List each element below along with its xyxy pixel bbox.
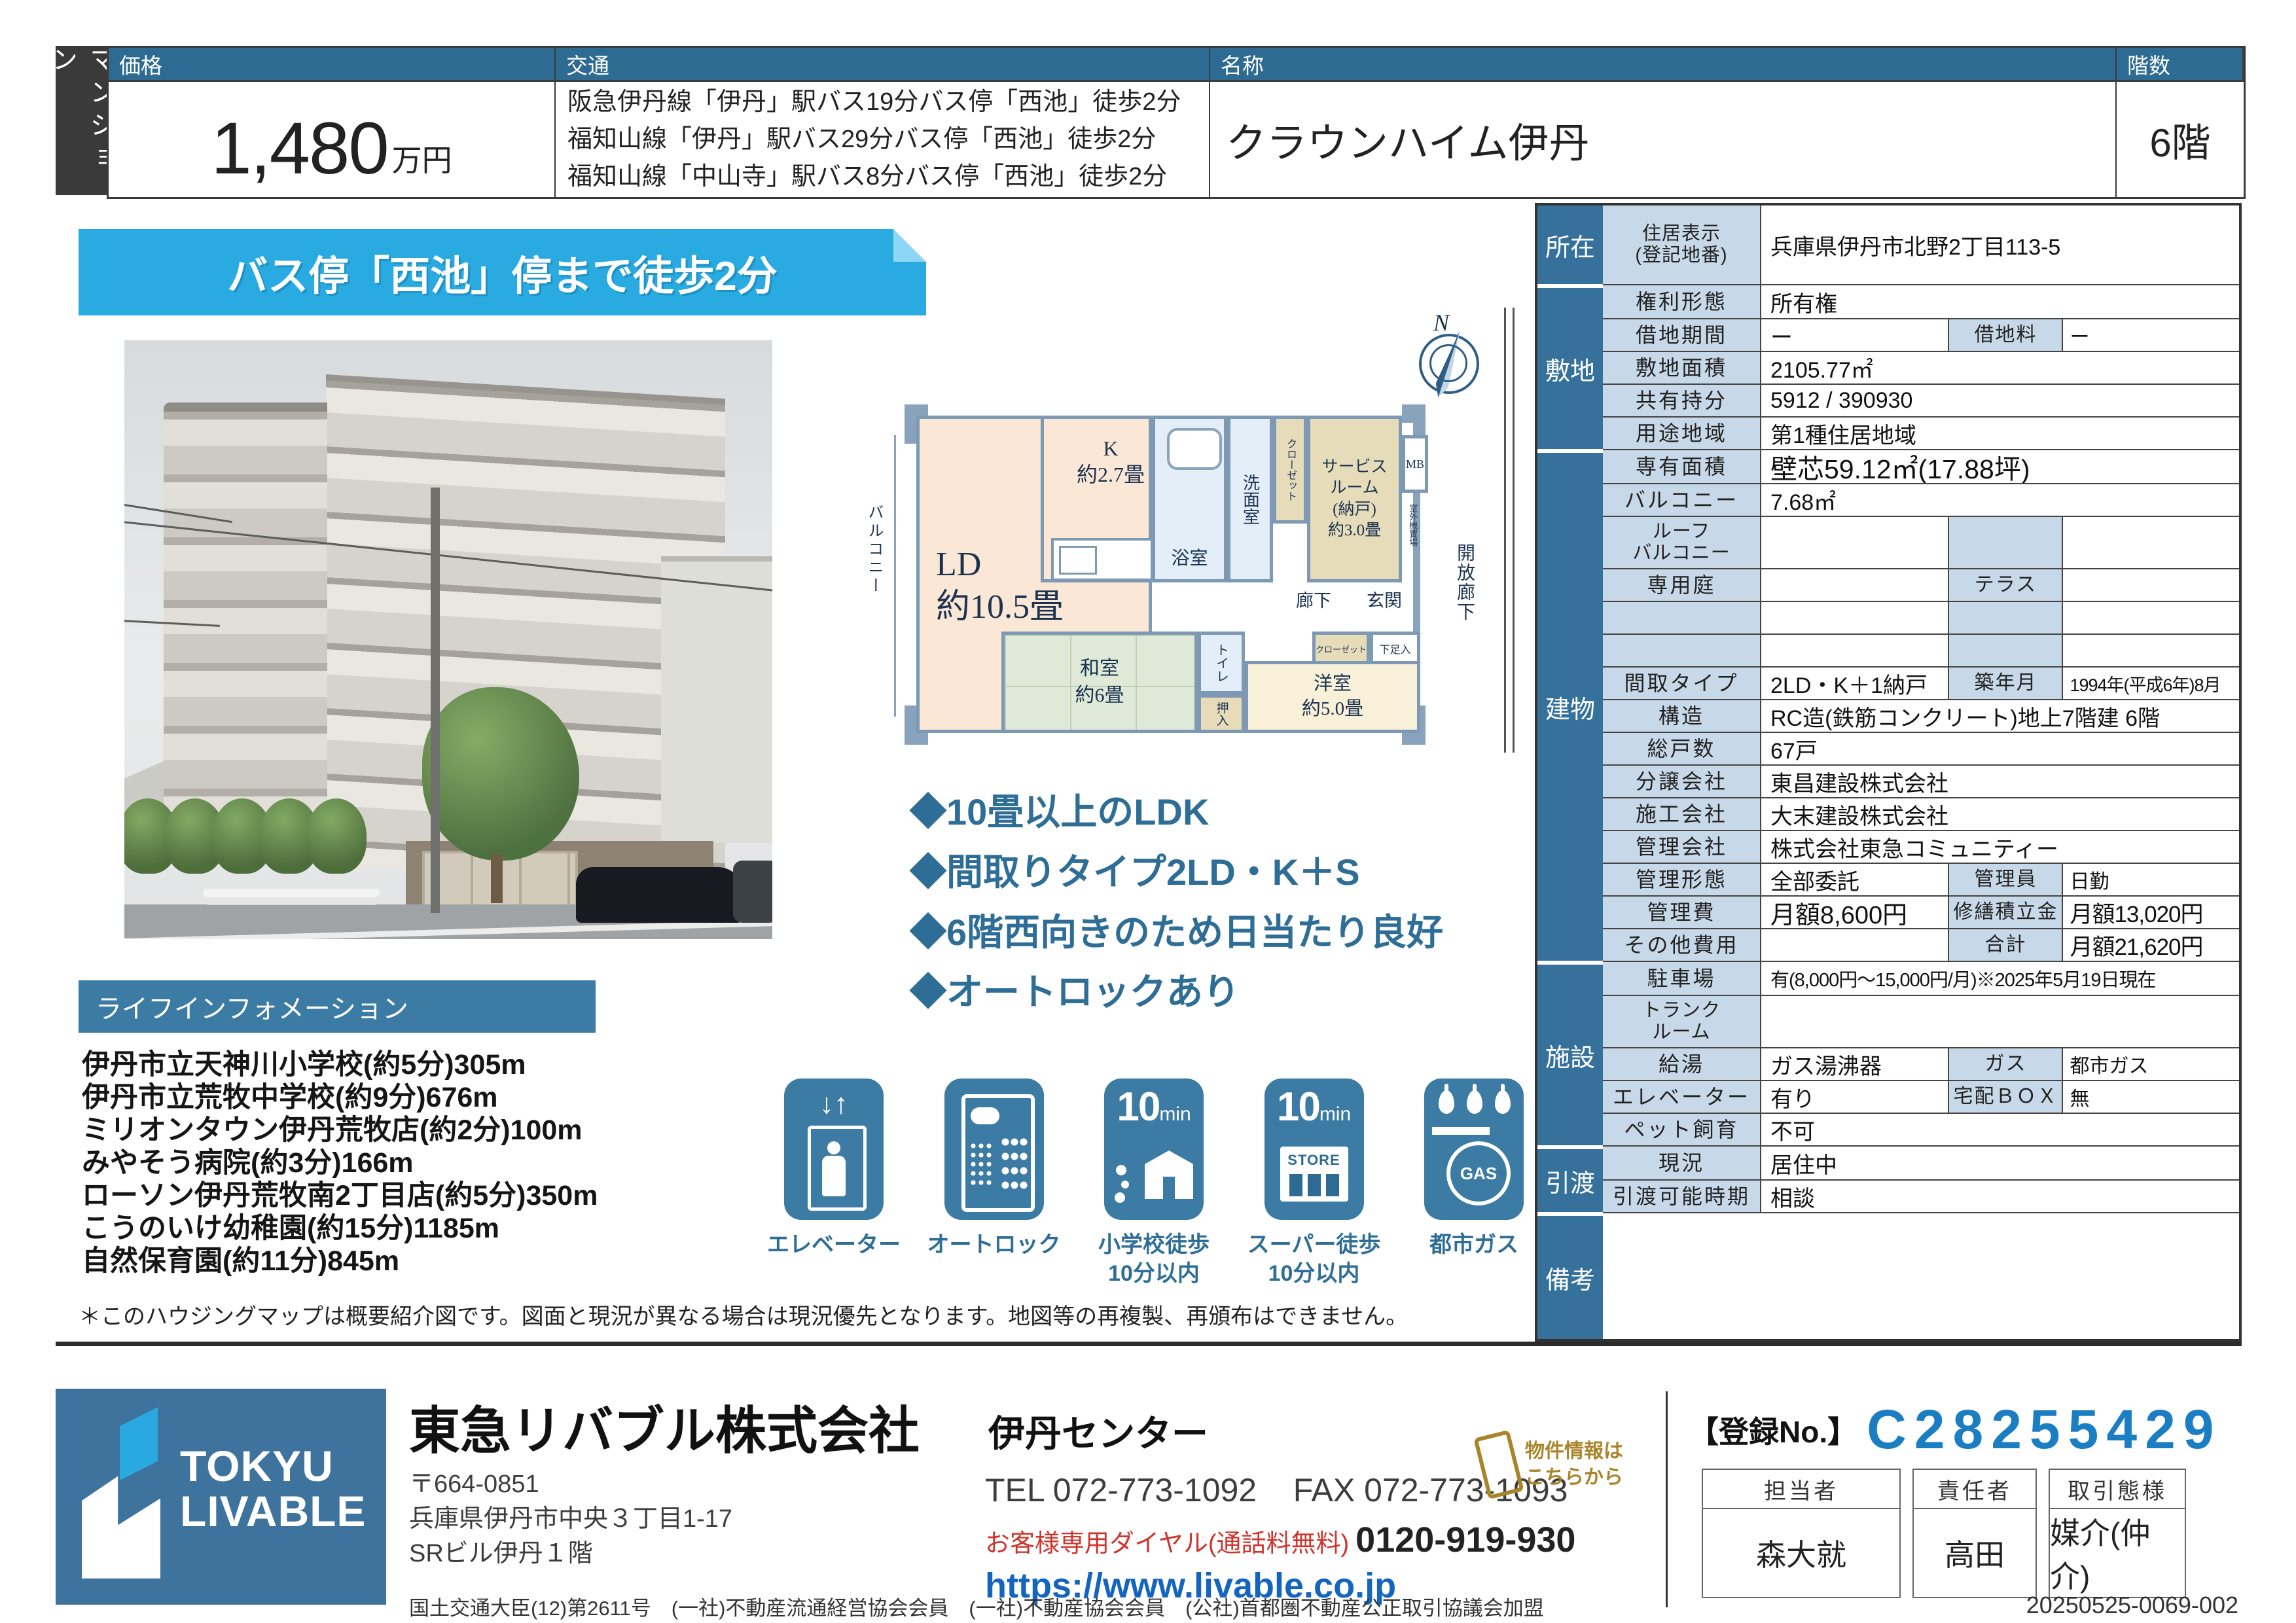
- banner-fold-decoration: [893, 229, 926, 262]
- compass-icon: [1419, 334, 1479, 394]
- row-value: 所有権: [1761, 285, 2239, 318]
- row-value: 有り: [1761, 1081, 1948, 1113]
- logo-text-line: LIVABLE: [180, 1489, 366, 1534]
- row-label2: 宅配ＢＯＸ: [1948, 1081, 2063, 1113]
- staff-box-tantosha: 担当者 森大就: [1702, 1469, 1901, 1598]
- registration-number: C28255429: [1857, 1398, 2221, 1461]
- row-value2: 都市ガス: [2063, 1048, 2239, 1080]
- price-unit: 万円: [388, 137, 452, 185]
- row-label: 管理会社: [1603, 831, 1761, 863]
- row-label2: 借地料: [1948, 319, 2063, 351]
- staff-table: 担当者 森大就 責任者 高田 取引態様 媒介(仲介): [1702, 1469, 2186, 1598]
- transit-line: 福知山線「伊丹」駅バス29分バス停「西池」徒歩2分: [567, 121, 1156, 158]
- row-label2: [1948, 635, 2063, 666]
- row-value: 株式会社東急コミュニティー: [1761, 831, 2239, 863]
- feature-city-gas: GAS 都市ガス: [1405, 1079, 1543, 1288]
- highlight-item: ◆6階西向きのため日当たり良好: [910, 902, 1558, 963]
- section-label: 建物: [1537, 449, 1603, 961]
- room-washroom: 洗面室: [1227, 416, 1273, 582]
- row-value2: 無: [2063, 1081, 2239, 1113]
- table-row: 住居表示 (登記地番) 兵庫県伊丹市北野2丁目113-5: [1603, 205, 2239, 284]
- table-row: 借地期間 ー 借地料 ー: [1603, 318, 2239, 351]
- registration-label: 【登録No.】: [1689, 1408, 1857, 1452]
- transit-value: 阪急伊丹線「伊丹」駅バス19分バス停「西池」徒歩2分 福知山線「伊丹」駅バス29…: [556, 82, 1210, 197]
- row-label: 共有持分: [1603, 385, 1761, 416]
- meter-box: MB: [1402, 435, 1428, 493]
- row-value2: [2063, 517, 2239, 568]
- disclaimer-text: ＊このハウジングマップは概要紹介図です。図面と現況が異なる場合は現況優先となりま…: [79, 1298, 1408, 1330]
- row-label2: 合計: [1948, 929, 2063, 961]
- row-label: 給湯: [1603, 1048, 1761, 1080]
- license-line: 国土交通大臣(12)第2611号 (一社)不動産流通経営協会会員 (一社)不動産…: [409, 1592, 1544, 1621]
- row-value: ー: [1761, 319, 1948, 351]
- office-address: 〒664-0851 兵庫県伊丹市中央３丁目1-17 SRビル伊丹１階: [409, 1467, 732, 1572]
- toll-free-label: お客様専用ダイヤル(通話料無料): [985, 1523, 1349, 1559]
- listing-flyer: マンション 価格 交通 名称 階数 1,480 万円 阪急伊丹線「伊丹」駅バス1…: [0, 0, 2296, 1623]
- life-info-item: こうのいけ幼稚園(約15分)1185m: [82, 1212, 776, 1245]
- row-value: [1761, 517, 1948, 568]
- closet-top-label: クローゼット: [1282, 438, 1298, 501]
- kitchen-counter: [1051, 538, 1153, 581]
- row-label2: テラス: [1948, 569, 2063, 601]
- parked-car: [733, 861, 772, 923]
- closet-top: クローゼット: [1273, 416, 1307, 524]
- row-value: [1761, 602, 1948, 633]
- table-row: 専有面積 壁芯59.12㎡(17.88坪): [1603, 450, 2239, 483]
- feature-caption: 都市ガス: [1405, 1230, 1543, 1259]
- catch-banner: バス停「西池」停まで徒歩2分: [79, 229, 926, 315]
- section-remarks: 備考: [1537, 1212, 2239, 1339]
- life-info-item: ローソン伊丹荒牧南2丁目店(約5分)350m: [82, 1179, 776, 1212]
- meter-box-label: MB: [1406, 457, 1424, 471]
- room-bath-label: 浴室: [1171, 544, 1208, 570]
- row-value2: 日勤: [2063, 864, 2239, 895]
- table-row: 専用庭 テラス: [1603, 568, 2239, 601]
- table-row: 分譲会社 東昌建設株式会社: [1603, 764, 2239, 797]
- table-row: 引渡可能時期 相談: [1603, 1179, 2239, 1212]
- table-row: 用途地域 第1種住居地域: [1603, 416, 2239, 449]
- transit-line: 福知山線「中山寺」駅バス8分バス停「西池」徒歩2分: [567, 158, 1167, 196]
- section-location: 所在 住居表示 (登記地番) 兵庫県伊丹市北野2丁目113-5: [1537, 205, 2239, 284]
- section-label: 施設: [1537, 961, 1603, 1145]
- gas-label: GAS: [1460, 1164, 1497, 1184]
- toll-free-line: お客様専用ダイヤル(通話料無料) 0120-919-930: [985, 1520, 1575, 1560]
- feature-super-10min: 10min STORE スーパー徒歩 10分以内: [1245, 1079, 1384, 1288]
- table-row: 施工会社 大末建設株式会社: [1603, 797, 2239, 830]
- guardrail: [203, 889, 380, 897]
- row-value2: [2063, 569, 2239, 601]
- row-label: 用途地域: [1603, 418, 1761, 449]
- row-value2: 1994年(平成6年)8月: [2063, 668, 2239, 699]
- table-row: 総戸数 67戸: [1603, 732, 2239, 764]
- tree-trunk: [491, 854, 503, 903]
- row-label2: [1948, 517, 2063, 568]
- table-row: トランク ルーム: [1603, 995, 2239, 1047]
- row-label: 駐車場: [1603, 962, 1761, 995]
- life-info-item: みやそう病院(約3分)166m: [82, 1147, 776, 1179]
- address-line: 兵庫県伊丹市中央３丁目1-17: [409, 1502, 732, 1537]
- runner-icon: [1116, 1165, 1126, 1175]
- feature-school-10min: 10min 小学校徒歩 10分以内: [1085, 1079, 1223, 1288]
- store-label: STORE: [1280, 1152, 1348, 1169]
- tel-number: TEL 072-773-1092: [985, 1472, 1257, 1508]
- store-10min-icon: 10min STORE: [1265, 1079, 1364, 1220]
- oshiire-label: 押入: [1213, 702, 1230, 726]
- row-value2: [2063, 635, 2239, 666]
- price-value: 1,480 万円: [109, 82, 556, 197]
- name-header: 名称: [1210, 48, 2117, 82]
- room-japanese-label: 和室 約6畳: [1075, 656, 1124, 709]
- row-label2: 管理員: [1948, 864, 2063, 895]
- life-info-list: 伊丹市立天神川小学校(約5分)305m 伊丹市立荒牧中学校(約9分)676m ミ…: [82, 1048, 776, 1277]
- row-label: 専用庭: [1603, 569, 1761, 601]
- logo-mark: [82, 1467, 160, 1578]
- catch-banner-text: バス停「西池」停まで徒歩2分: [227, 243, 777, 302]
- row-label: 住居表示 (登記地番): [1603, 205, 1761, 284]
- row-label: 借地期間: [1603, 319, 1761, 351]
- row-value: 月額8,600円: [1761, 897, 1948, 928]
- feature-icon-row: ↓↑ エレベーター オートロック 10min 小学校徒歩 10分以内 10min…: [764, 1079, 1543, 1288]
- row-value: 2LD・K＋1納戸: [1761, 668, 1948, 699]
- school-10min-icon: 10min: [1104, 1079, 1204, 1220]
- table-row: 敷地面積 2105.77㎡: [1603, 351, 2239, 383]
- feature-autolock: オートロック: [925, 1079, 1064, 1288]
- section-label: 引渡: [1537, 1145, 1603, 1212]
- row-label: トランク ルーム: [1603, 996, 1761, 1047]
- row-value: RC造(鉄筋コンクリート)地上7階建 6階: [1761, 700, 2239, 732]
- section-building: 建物 専有面積 壁芯59.12㎡(17.88坪) バルコニー 7.68㎡ ルーフ…: [1537, 449, 2239, 961]
- company-name: 東急リバブル株式会社: [409, 1390, 920, 1463]
- life-info-title: ライフインフォメーション: [79, 980, 596, 1033]
- staff-box-sekininsha: 責任者 高田: [1912, 1469, 2037, 1598]
- footer-vertical-divider: [1666, 1391, 1668, 1607]
- staff-header: 担当者: [1703, 1470, 1899, 1509]
- phone-icon: [1473, 1430, 1524, 1500]
- table-row: 現況 居住中: [1603, 1147, 2239, 1179]
- document-code: 20250525-0069-002: [2026, 1592, 2238, 1619]
- row-value: 壁芯59.12㎡(17.88坪): [1761, 450, 2239, 483]
- price-header: 価格: [109, 48, 556, 82]
- row-value2: [2063, 602, 2239, 633]
- row-label: 分譲会社: [1603, 766, 1761, 797]
- address-line: SRビル伊丹１階: [409, 1537, 732, 1571]
- autolock-icon: [944, 1079, 1044, 1220]
- row-value2: 月額13,020円: [2063, 897, 2239, 928]
- row-label: 引渡可能時期: [1603, 1181, 1761, 1212]
- row-value: 67戸: [1761, 733, 2239, 764]
- row-label: バルコニー: [1603, 484, 1761, 516]
- table-row: その他費用 合計 月額21,620円: [1603, 928, 2239, 961]
- row-label: 構造: [1603, 700, 1761, 732]
- row-label: ルーフ バルコニー: [1603, 517, 1761, 568]
- logo-text-line: TOKYU: [180, 1444, 366, 1489]
- staff-box-torihiki: 取引態様 媒介(仲介): [2049, 1469, 2186, 1598]
- registration-line: 【登録No.】 C28255429: [1689, 1398, 2222, 1461]
- bathtub-icon: [1167, 428, 1222, 470]
- table-row: [1603, 601, 2239, 633]
- row-value: 大末建設株式会社: [1761, 798, 2239, 830]
- row-value: 不可: [1761, 1114, 2239, 1145]
- feature-caption: 小学校徒歩 10分以内: [1085, 1230, 1223, 1288]
- transit-header: 交通: [556, 48, 1210, 82]
- price-number: 1,480: [211, 112, 387, 185]
- table-row: エレベーター 有り 宅配ＢＯＸ 無: [1603, 1080, 2239, 1113]
- table-row: バルコニー 7.68㎡: [1603, 483, 2239, 516]
- highlight-item: ◆オートロックあり: [910, 962, 1558, 1022]
- closet2-label: クローゼット: [1316, 643, 1367, 655]
- elevator-icon: ↓↑: [784, 1079, 884, 1220]
- balcony-label: バルコニー: [864, 504, 884, 596]
- room-toilet-label: トイレ: [1212, 643, 1231, 683]
- postal-code: 〒664-0851: [409, 1467, 732, 1502]
- room-service: サービス ルーム (納戸) 約3.0畳: [1307, 416, 1402, 582]
- row-value: 居住中: [1761, 1147, 2239, 1179]
- life-info-item: 伊丹市立天神川小学校(約5分)305m: [82, 1048, 776, 1081]
- row-label: 施工会社: [1603, 798, 1761, 830]
- section-label: 敷地: [1537, 284, 1603, 449]
- row-value: 兵庫県伊丹市北野2丁目113-5: [1761, 205, 2239, 284]
- row-label2: [1948, 602, 2063, 633]
- entrance-label: 玄関: [1367, 590, 1402, 613]
- row-label: 総戸数: [1603, 733, 1761, 764]
- table-row: 共有持分 5912 / 390930: [1603, 383, 2239, 416]
- row-label: 管理形態: [1603, 864, 1761, 895]
- feature-caption: スーパー徒歩 10分以内: [1245, 1230, 1384, 1288]
- room-japanese: 和室 約6畳: [1001, 632, 1198, 733]
- highlight-item: ◆10畳以上のLDK: [910, 782, 1558, 842]
- table-row: 管理会社 株式会社東急コミュニティー: [1603, 830, 2239, 863]
- table-row: 管理形態 全部委託 管理員 日勤: [1603, 863, 2239, 895]
- property-info-note: 物件情報は こちらから: [1480, 1433, 1623, 1496]
- row-label: ペット飼育: [1603, 1114, 1761, 1145]
- office-name: 伊丹センター: [988, 1404, 1208, 1457]
- row-value: [1603, 1213, 2239, 1339]
- hedge: [131, 798, 367, 877]
- plan-right-divider: [1504, 308, 1515, 753]
- row-label: 現況: [1603, 1147, 1761, 1179]
- staff-header: 責任者: [1914, 1470, 2036, 1509]
- property-detail-table: 所在 住居表示 (登記地番) 兵庫県伊丹市北野2丁目113-5 敷地 権利形態 …: [1535, 203, 2242, 1342]
- parked-car: [576, 867, 743, 923]
- row-value: 5912 / 390930: [1761, 385, 2239, 416]
- row-value2: ー: [2063, 319, 2239, 351]
- row-label: 権利形態: [1603, 285, 1761, 318]
- row-label: 専有面積: [1603, 450, 1761, 483]
- row-label: その他費用: [1603, 929, 1761, 961]
- footer-divider: [56, 1342, 2242, 1346]
- section-label: 備考: [1537, 1212, 1603, 1339]
- table-row: ルーフ バルコニー: [1603, 516, 2239, 568]
- outdoor-unit-label: 室外機置場: [1407, 504, 1418, 546]
- section-land: 敷地 権利形態 所有権 借地期間 ー 借地料 ー 敷地面積 2105.77㎡ 共: [1537, 284, 2239, 449]
- table-row: [1603, 633, 2239, 666]
- section-facility: 施設 駐車場 有(8,000円～15,000円/月)※2025年5月19日現在 …: [1537, 961, 2239, 1145]
- compass-n-label: N: [1433, 309, 1449, 336]
- transit-line: 阪急伊丹線「伊丹」駅バス19分バス停「西池」徒歩2分: [567, 84, 1181, 121]
- table-row: [1603, 1213, 2239, 1339]
- open-corridor-label: 開放廊下: [1453, 543, 1476, 622]
- feature-caption: オートロック: [925, 1230, 1064, 1259]
- row-label: 間取タイプ: [1603, 668, 1761, 699]
- section-handover: 引渡 現況 居住中 引渡可能時期 相談: [1537, 1145, 2239, 1212]
- balcony-rail: [894, 435, 896, 717]
- property-photo: [124, 340, 772, 939]
- room-western: 洋室 約5.0畳: [1245, 661, 1420, 733]
- row-label: [1603, 635, 1761, 666]
- staff-value: 媒介(仲介): [2050, 1509, 2185, 1597]
- table-row: 構造 RC造(鉄筋コンクリート)地上7階建 6階: [1603, 699, 2239, 732]
- table-row: 給湯 ガス湯沸器 ガス 都市ガス: [1603, 1047, 2239, 1080]
- neighbor-building: [661, 556, 772, 843]
- header-table: 価格 交通 名称 階数 1,480 万円 阪急伊丹線「伊丹」駅バス19分バス停「…: [107, 46, 2246, 199]
- room-service-label: サービス ルーム (納戸) 約3.0畳: [1321, 457, 1387, 542]
- row-value: 相談: [1761, 1181, 2239, 1212]
- staff-value: 高田: [1914, 1509, 2036, 1597]
- store-icon: STORE: [1280, 1147, 1348, 1202]
- life-info-item: ミリオンタウン伊丹荒牧店(約2分)100m: [82, 1114, 776, 1147]
- staff-header: 取引態様: [2050, 1470, 2185, 1509]
- life-info-item: 伊丹市立荒牧中学校(約9分)676m: [82, 1081, 776, 1114]
- row-value2: 月額21,620円: [2063, 929, 2239, 961]
- highlight-list: ◆10畳以上のLDK ◆間取りタイプ2LD・K＋S ◆6階西向きのため日当たり良…: [910, 782, 1558, 1022]
- life-info-item: 自然保育園(約11分)845m: [82, 1245, 776, 1277]
- property-name: クラウンハイム伊丹: [1210, 82, 2117, 197]
- table-row: 権利形態 所有権: [1603, 285, 2239, 318]
- toll-free-number: 0120-919-930: [1349, 1520, 1575, 1560]
- hallway-label: 廊下: [1296, 590, 1331, 613]
- room-bath: 浴室: [1152, 416, 1227, 582]
- row-label: [1603, 602, 1761, 633]
- property-info-note-text: 物件情報は こちらから: [1525, 1438, 1623, 1491]
- property-type-tab: マンション: [56, 46, 107, 195]
- oshiire: 押入: [1198, 694, 1245, 733]
- row-value: [1761, 996, 2239, 1047]
- row-value: [1761, 569, 1948, 601]
- floor-plan: N LD 約10.5畳 K 約2.7畳 浴室 洗面室 クローゼット サービス ル…: [844, 308, 1528, 753]
- row-value: 7.68㎡: [1761, 484, 2239, 516]
- row-value: 全部委託: [1761, 864, 1948, 895]
- row-label2: 修繕積立金: [1948, 897, 2063, 928]
- table-row: 管理費 月額8,600円 修繕積立金 月額13,020円: [1603, 895, 2239, 928]
- floor-value: 6階: [2117, 82, 2244, 197]
- shoe-box-label: 下足入: [1379, 641, 1410, 656]
- floor-header: 階数: [2117, 48, 2244, 82]
- table-row: ペット飼育 不可: [1603, 1113, 2239, 1145]
- row-value: ガス湯沸器: [1761, 1048, 1948, 1080]
- room-toilet: トイレ: [1198, 632, 1245, 694]
- table-row: 駐車場 有(8,000円～15,000円/月)※2025年5月19日現在: [1603, 962, 2239, 995]
- room-washroom-label: 洗面室: [1238, 474, 1263, 525]
- row-label: エレベーター: [1603, 1081, 1761, 1113]
- row-label2: ガス: [1948, 1048, 2063, 1080]
- logo-mark-accent: [120, 1407, 158, 1480]
- row-value: [1761, 635, 1948, 666]
- staff-value: 森大就: [1703, 1509, 1899, 1597]
- min-unit: min: [1159, 1103, 1191, 1125]
- utility-pole: [431, 488, 440, 913]
- row-label: 敷地面積: [1603, 352, 1761, 383]
- tokyu-livable-logo: TOKYU LIVABLE: [56, 1389, 386, 1605]
- row-value: 東昌建設株式会社: [1761, 766, 2239, 797]
- room-kitchen-label: K 約2.7畳: [1077, 435, 1145, 488]
- highlight-item: ◆間取りタイプ2LD・K＋S: [910, 842, 1558, 902]
- row-label: 管理費: [1603, 897, 1761, 928]
- room-western-label: 洋室 約5.0畳: [1302, 672, 1363, 721]
- row-value: 第1種住居地域: [1761, 418, 2239, 449]
- row-value: [1761, 929, 1948, 961]
- row-label2: 築年月: [1948, 668, 2063, 699]
- table-row: 間取タイプ 2LD・K＋1納戸 築年月 1994年(平成6年)8月: [1603, 666, 2239, 699]
- school-building-icon: [1145, 1150, 1193, 1199]
- feature-elevator: ↓↑ エレベーター: [764, 1079, 903, 1288]
- ten-number: 10: [1277, 1084, 1319, 1130]
- feature-caption: エレベーター: [764, 1230, 903, 1259]
- section-label: 所在: [1537, 205, 1603, 284]
- row-value: 2105.77㎡: [1761, 352, 2239, 383]
- row-value: 有(8,000円～15,000円/月)※2025年5月19日現在: [1761, 962, 2239, 995]
- min-unit: min: [1319, 1103, 1351, 1125]
- gas-icon: GAS: [1424, 1079, 1524, 1220]
- ten-number: 10: [1117, 1084, 1159, 1130]
